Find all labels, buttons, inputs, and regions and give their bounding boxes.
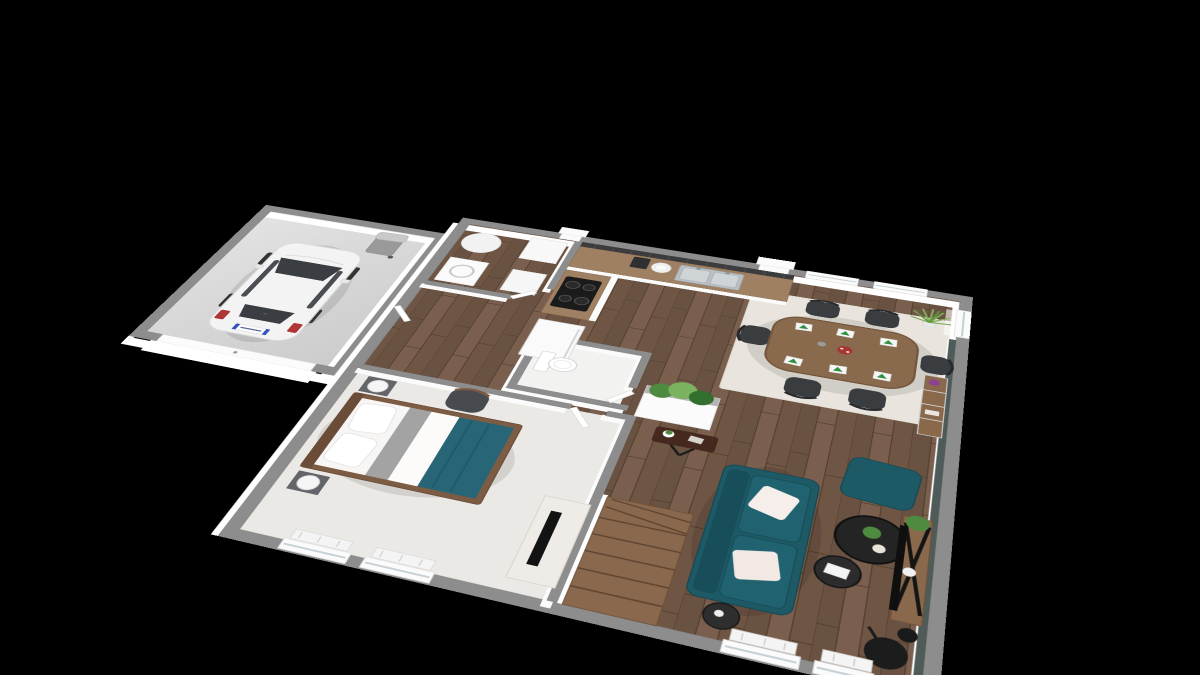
floor-plan-svg [0, 184, 974, 675]
render-canvas [0, 0, 1200, 675]
sofa-pillow-2 [732, 550, 781, 582]
floor-plan-3d [0, 184, 974, 675]
